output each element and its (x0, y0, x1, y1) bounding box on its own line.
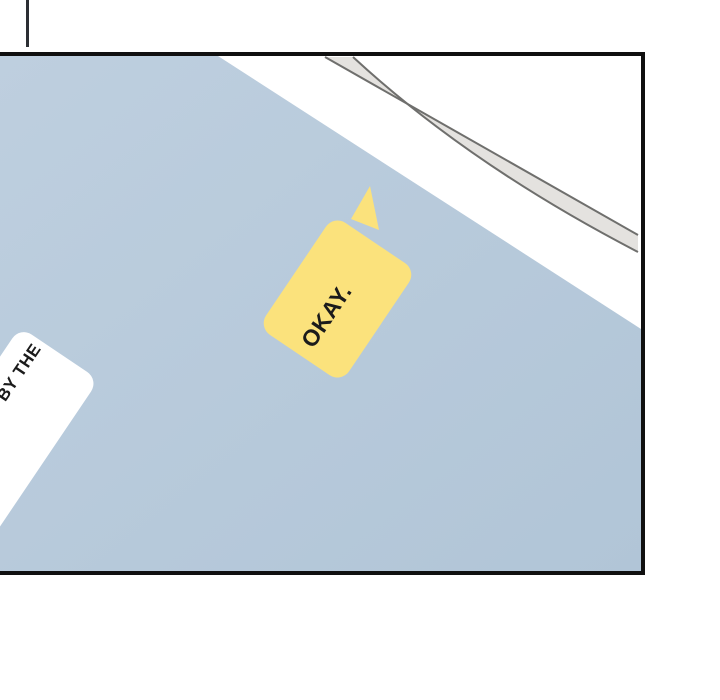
panel-gutter (0, 575, 720, 700)
speech-text-line2: — (0, 483, 6, 508)
comic-panel: BY THE — OKAY. (0, 52, 645, 575)
comic-page: BY THE — OKAY. (0, 0, 720, 700)
previous-panel-border-fragment (26, 0, 29, 47)
speech-text-okay: OKAY. (295, 279, 357, 353)
speech-text-line1: BY THE (0, 340, 46, 405)
